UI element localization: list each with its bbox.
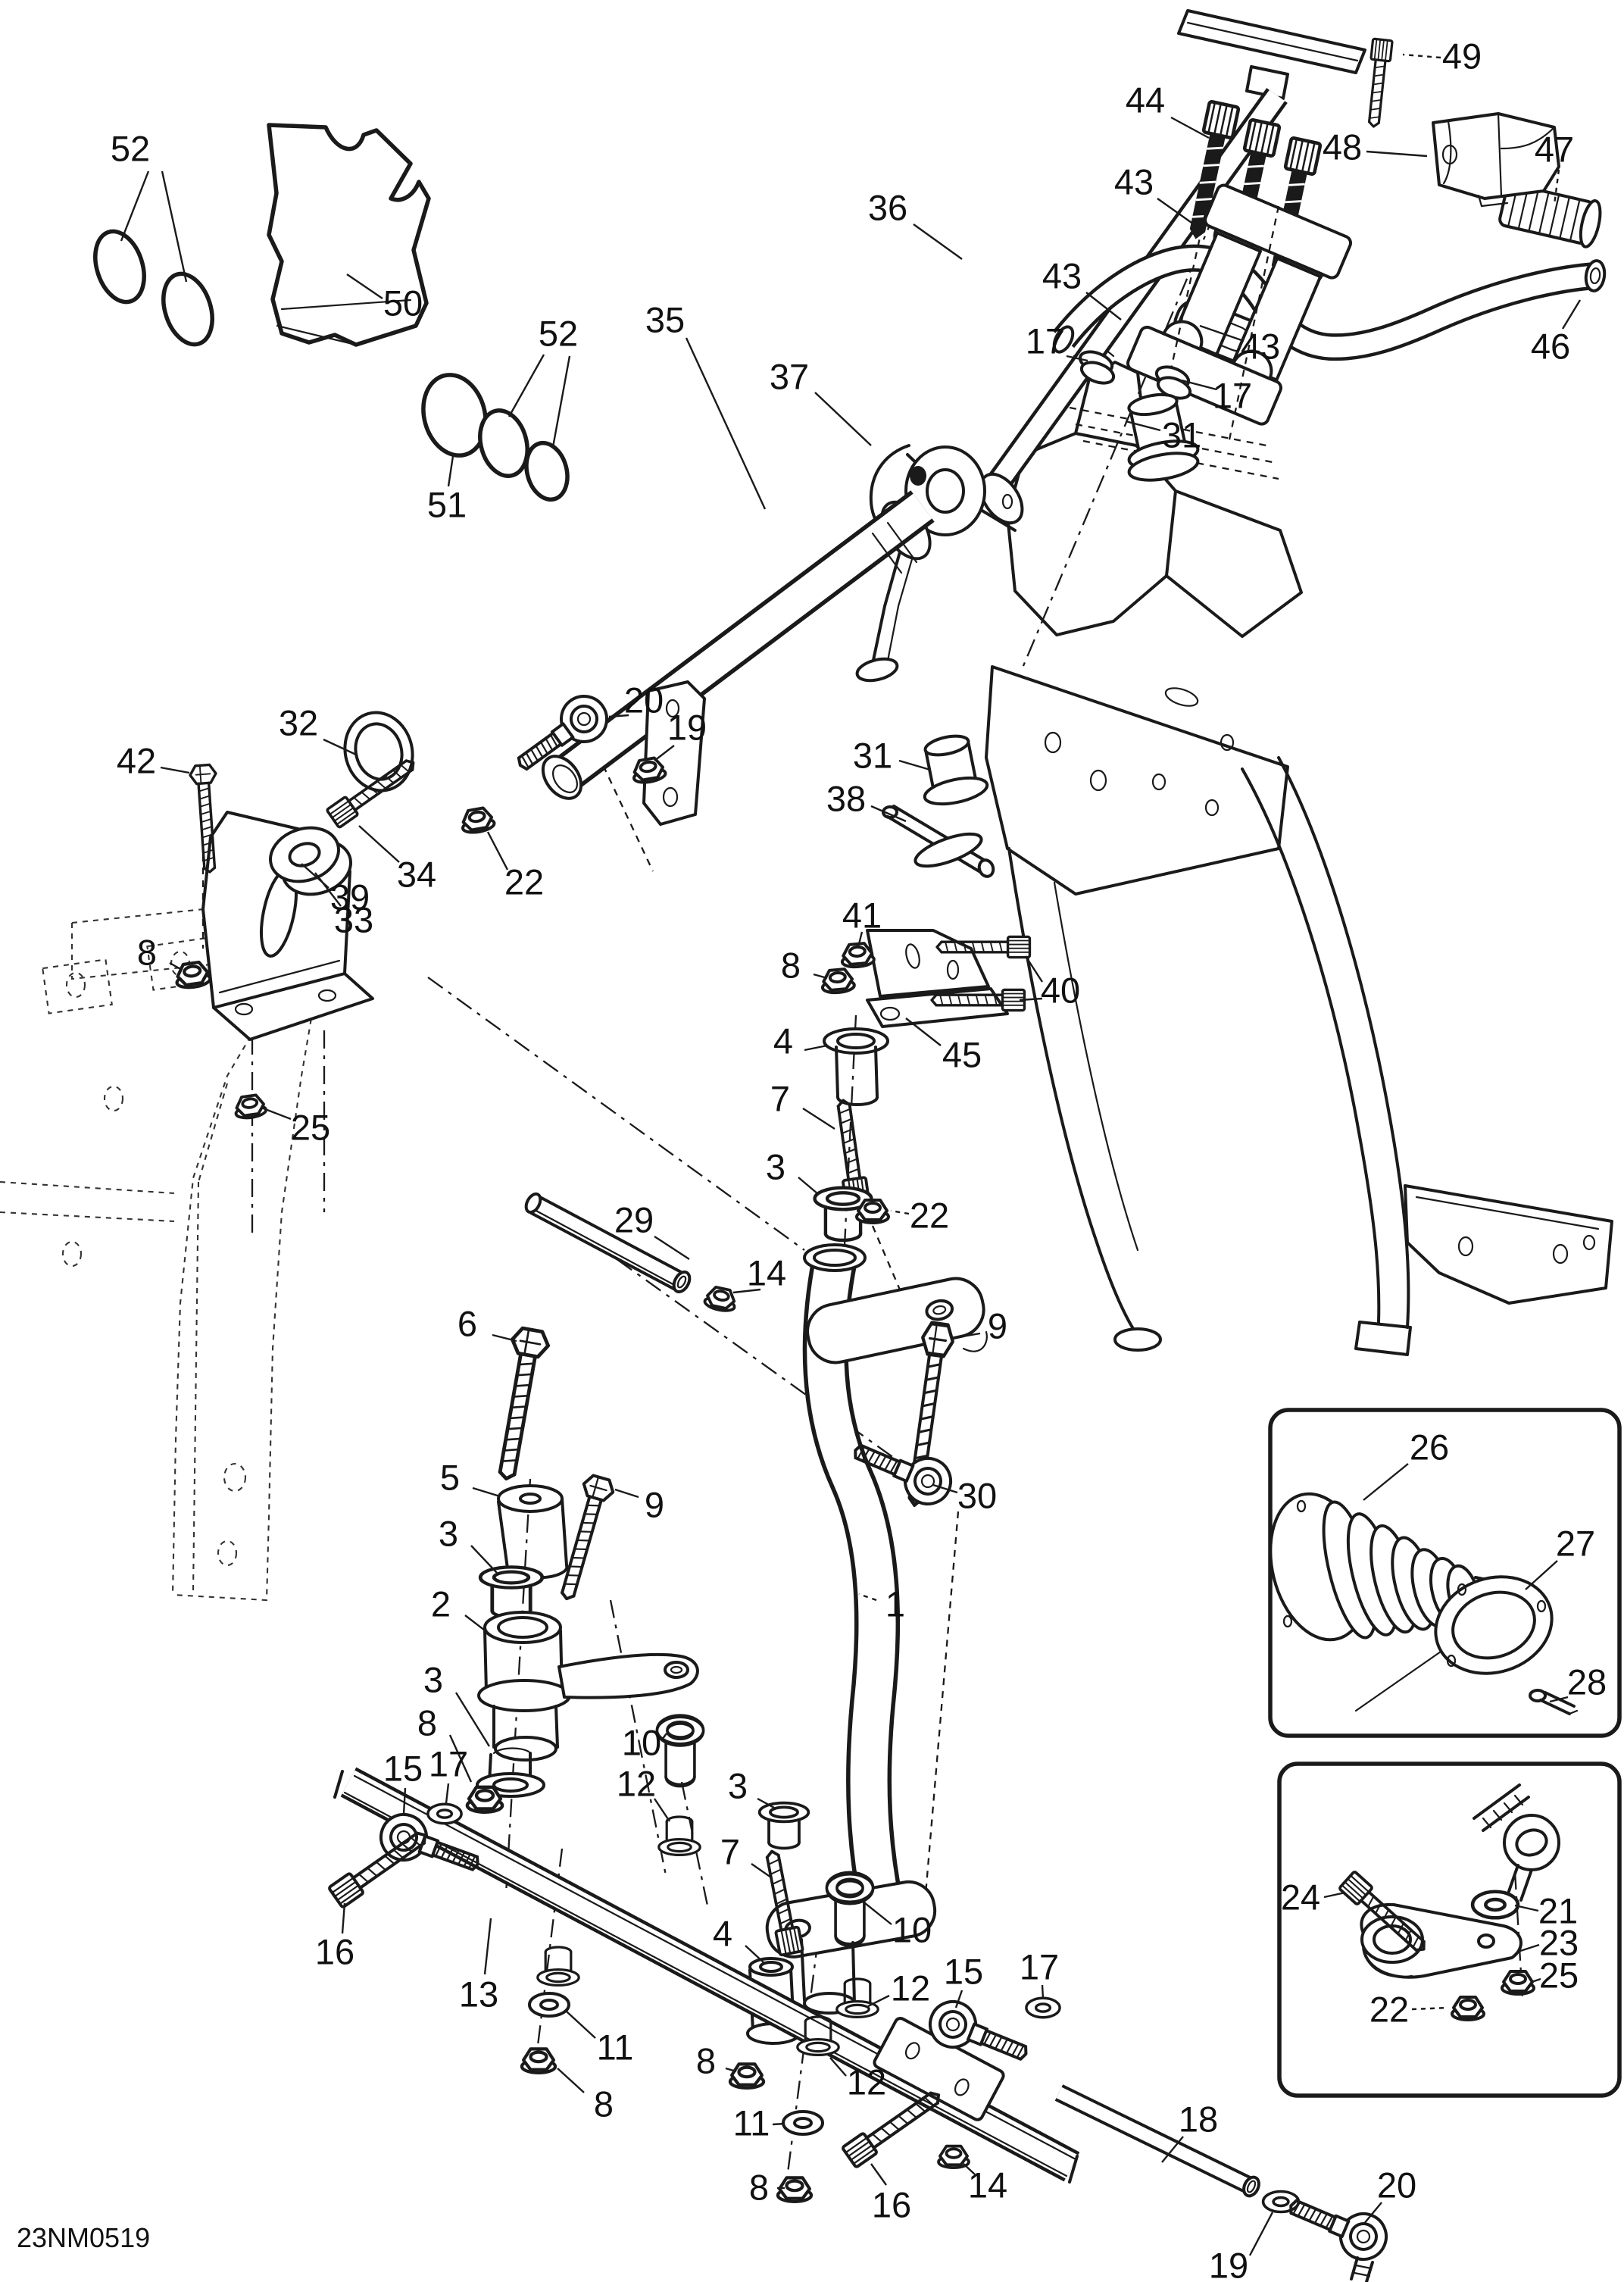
callout-42: 42 [117, 741, 156, 781]
screw-49 [1364, 39, 1393, 127]
callout-30: 30 [957, 1476, 997, 1516]
steering-stem-1 [763, 1245, 988, 2013]
callout-10: 10 [892, 1910, 932, 1950]
steering-wheel-stub [1179, 11, 1365, 98]
callout-11: 11 [597, 2027, 634, 2068]
callout-leader-48 [1366, 152, 1427, 156]
callout-leader-17 [1042, 1985, 1043, 1999]
callout-25: 25 [291, 1108, 330, 1148]
callout-9: 9 [645, 1485, 664, 1525]
callout-leader-13 [485, 1918, 491, 1974]
callout-8: 8 [137, 933, 157, 973]
callout-31: 31 [1162, 415, 1201, 455]
callout-leader-19 [1250, 2212, 1273, 2255]
callout-leader-11 [567, 2012, 595, 2038]
callout-leader-34 [359, 826, 399, 862]
callout-7: 7 [770, 1079, 790, 1119]
stem-fasteners-top [815, 1029, 889, 1240]
callout-15: 15 [944, 1952, 983, 1992]
callout-14: 14 [968, 2165, 1007, 2205]
drawing-code: 23NM0519 [17, 2222, 150, 2253]
callout-17: 17 [1020, 1947, 1059, 1987]
callout-leader-11 [773, 2124, 785, 2124]
callout-leader-52 [509, 355, 544, 417]
callout-leader-52 [121, 171, 148, 241]
callout-4: 4 [773, 1021, 793, 1061]
callout-leader-22 [1412, 2008, 1448, 2009]
callout-leader-22 [891, 1211, 909, 1214]
callout-41: 41 [842, 896, 882, 936]
exploded-diagram: 5250525135363744494847434343171731463138… [0, 0, 1624, 2282]
callout-27: 27 [1556, 1524, 1595, 1564]
callout-leader-24 [1324, 1893, 1345, 1897]
callout-leader-42 [161, 767, 189, 773]
callout-18: 18 [1179, 2099, 1218, 2140]
callout-leader-31 [899, 761, 930, 770]
bushing-31-washer-38 [883, 733, 995, 878]
callout-47: 47 [1535, 130, 1574, 170]
callout-leader-36 [913, 224, 962, 259]
callout-19: 19 [667, 708, 707, 748]
callout-6: 6 [458, 1304, 477, 1344]
callout-34: 34 [397, 855, 436, 895]
parts-diagram-page: 5250525135363744494847434343171731463138… [0, 0, 1624, 2282]
callout-8: 8 [417, 1703, 437, 1743]
callout-leader-9 [615, 1490, 639, 1497]
callout-leader-16 [871, 2164, 886, 2185]
callout-12: 12 [617, 1764, 656, 1804]
callout-50: 50 [383, 283, 423, 324]
callout-44: 44 [1126, 80, 1165, 120]
callout-14: 14 [747, 1253, 786, 1293]
callout-leader-5 [473, 1488, 500, 1496]
callout-11: 11 [733, 2103, 770, 2143]
callout-leader-35 [686, 338, 765, 509]
callout-8: 8 [749, 2168, 769, 2208]
callout-1: 1 [885, 1584, 905, 1624]
callout-17: 17 [1213, 376, 1252, 416]
callout-12: 12 [891, 1968, 930, 2008]
callout-leader-51 [448, 456, 453, 486]
o-rings-51-52-right [414, 367, 573, 504]
callout-13: 13 [459, 1974, 498, 2015]
callout-45: 45 [942, 1035, 982, 1075]
callout-20: 20 [1377, 2165, 1416, 2205]
callout-35: 35 [645, 300, 685, 340]
callout-46: 46 [1531, 327, 1570, 367]
callout-10: 10 [622, 1723, 661, 1763]
callout-39: 39 [330, 877, 370, 917]
callout-52: 52 [539, 314, 578, 354]
callout-3: 3 [728, 1766, 748, 1806]
callout-4: 4 [713, 1914, 732, 1954]
pivot-hardware-32-33-34 [264, 687, 667, 902]
callout-40: 40 [1041, 971, 1080, 1011]
callout-31: 31 [853, 736, 892, 776]
callout-17: 17 [1026, 321, 1065, 361]
callout-43: 43 [1241, 327, 1280, 367]
callout-24: 24 [1281, 1877, 1320, 1918]
callout-12: 12 [847, 2062, 886, 2102]
callout-22: 22 [1369, 1990, 1409, 2030]
callout-leader-27 [1526, 1561, 1557, 1590]
callout-leader-37 [815, 392, 871, 445]
callout-leader-17 [446, 1783, 448, 1803]
callout-52: 52 [111, 129, 150, 169]
callout-15: 15 [383, 1749, 423, 1789]
callout-51: 51 [427, 485, 467, 525]
callout-49: 49 [1442, 36, 1482, 77]
callout-leader-7 [803, 1108, 835, 1129]
callout-9: 9 [988, 1306, 1007, 1346]
callout-22: 22 [910, 1196, 949, 1236]
callout-25: 25 [1539, 1955, 1579, 1996]
callout-48: 48 [1323, 127, 1362, 167]
callout-37: 37 [770, 357, 809, 397]
callout-8: 8 [594, 2084, 614, 2124]
callout-16: 16 [872, 2185, 911, 2225]
callout-leader-4 [804, 1046, 827, 1050]
callout-8: 8 [696, 2041, 716, 2081]
callout-leader-46 [1563, 300, 1580, 329]
callout-7: 7 [720, 1832, 740, 1872]
callout-43: 43 [1114, 162, 1154, 202]
callout-20: 20 [624, 680, 664, 721]
callout-leader-8 [557, 2068, 584, 2093]
callout-3: 3 [423, 1660, 443, 1700]
callout-17: 17 [429, 1744, 468, 1784]
callout-leader-52 [162, 171, 186, 282]
callout-3: 3 [766, 1147, 785, 1187]
callout-22: 22 [504, 862, 544, 902]
support-bracket-45 [821, 930, 1029, 1027]
callout-leader-3 [471, 1546, 497, 1573]
callout-38: 38 [826, 779, 866, 819]
o-rings-52-left [87, 225, 221, 351]
callout-19: 19 [1209, 2246, 1248, 2282]
callout-3: 3 [439, 1514, 458, 1554]
callout-2: 2 [431, 1584, 451, 1624]
callout-leader-49 [1403, 55, 1441, 58]
callout-8: 8 [781, 946, 801, 986]
callout-43: 43 [1042, 256, 1082, 296]
callout-32: 32 [279, 703, 318, 743]
callout-26: 26 [1410, 1427, 1449, 1468]
callout-leader-29 [654, 1236, 689, 1259]
callout-leader-52 [553, 356, 570, 447]
callout-36: 36 [868, 188, 907, 228]
callout-29: 29 [614, 1200, 654, 1240]
callout-leader-50 [347, 274, 383, 299]
callout-leader-26 [1363, 1464, 1408, 1500]
callout-5: 5 [440, 1458, 460, 1498]
callout-28: 28 [1567, 1662, 1607, 1702]
callout-leader-3 [798, 1177, 818, 1194]
callout-leader-12 [654, 1799, 670, 1821]
callout-16: 16 [315, 1932, 354, 1972]
